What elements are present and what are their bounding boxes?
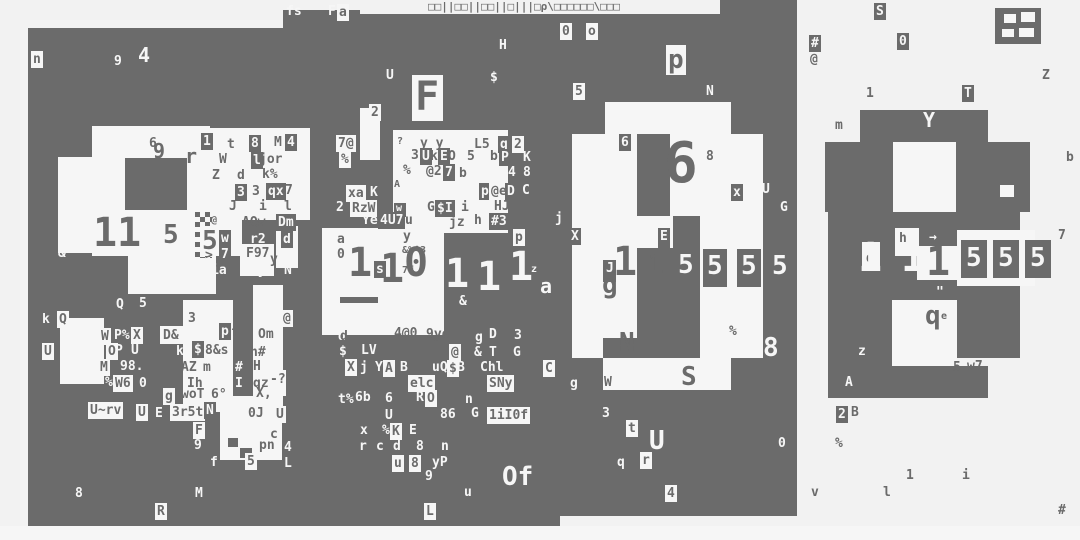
glyph: 4 [665,485,677,502]
glyph: 6 [385,392,393,405]
glyph: t% [338,393,354,406]
panel-block [603,358,731,390]
glyph: j [555,212,563,225]
glyph: 0 [337,248,345,261]
glyph: # [233,359,245,376]
glyph: b [459,167,467,180]
glyph: 6 [664,136,698,192]
glyph: % [382,424,390,437]
glyph: 5 [741,253,757,279]
glyph: U [386,69,394,82]
glyph: D& [163,329,179,342]
glyph: Y [923,110,935,130]
glyph: qx [266,183,286,200]
glyph: I [233,375,245,392]
glyph: fs [286,5,302,18]
glyph: LV [361,344,377,357]
glyph: z [858,345,866,358]
glyph: @ [281,310,293,327]
glyph: e [941,312,947,322]
glyph: U [131,344,139,357]
glyph: C [522,184,530,197]
glyph: f [231,326,239,339]
glyph: @ [810,53,818,66]
glyph: U [274,406,286,423]
panel-block [125,158,187,210]
glyph: A [383,360,395,377]
glyph: 1 [858,238,882,278]
panel-block [605,102,731,134]
glyph: 7f [402,266,414,276]
glyph: ia [211,264,227,277]
glyph: M [274,136,282,149]
glyph: AQw [242,216,265,229]
glyph: l [284,200,292,213]
glyph: 4 [285,134,297,151]
glyph: a [337,233,345,246]
glyph: R [155,503,167,520]
glyph: 8 [763,335,779,361]
glyph: 7@ [336,135,356,152]
glyph: D [489,328,497,341]
glyph: &%^3 [402,246,426,256]
glyph: 5 [707,253,723,279]
glyph: @ [211,216,217,226]
glyph: 86 [440,408,456,421]
glyph: d [340,330,348,343]
glyph: t [626,420,638,437]
glyph: H [499,39,507,52]
glyph: k [430,150,438,163]
panel-block [228,438,238,447]
glyph: q [925,303,941,329]
glyph: 9yo [426,328,449,341]
glyph: u [392,455,404,472]
glyph: x [360,424,368,437]
glyph: v [811,486,819,499]
glyph: 1 [866,87,874,100]
glyph: 6b [355,391,371,404]
glyph: B [457,361,465,374]
glyph: N [706,85,714,98]
glyph: 2 [369,104,381,121]
glyph: 5 [966,245,982,271]
glyph: F [328,5,336,18]
glyph: SNy [487,375,514,392]
glyph: o [586,23,598,40]
glyph: 4@0 [394,327,417,340]
glyph: 0 [897,33,909,50]
glyph: R [416,391,424,404]
glyph: h [474,214,482,227]
glyph: Of [502,464,533,490]
glyph: d [237,169,245,182]
glyph: X, [256,387,272,400]
glyph: g [475,331,483,344]
glyph: N [284,264,292,277]
glyph: 2 [336,201,344,214]
glyph: 5 [163,222,179,248]
glyph: S [874,3,886,20]
glyph: 5 [467,150,475,163]
glyph: X [345,359,357,376]
glyph: 0J [246,405,266,422]
glyph: G [893,301,909,327]
glyph: pn [259,439,275,452]
glyph: W [604,376,612,389]
glyph: w7 [967,360,983,373]
glyph: 5 [772,253,788,279]
glyph: K [390,423,402,440]
glyph: h# [250,346,266,359]
glyph: 8 [706,150,714,163]
glyph: 7 [219,246,231,263]
glyph: " [936,286,944,299]
glyph: & [474,346,482,359]
glyph: N [204,402,216,419]
glyph: % [835,437,843,450]
glyph: 1 [477,257,501,297]
glyph: r [640,452,652,469]
glyph: A [843,374,855,391]
glyph: a [337,4,349,21]
glyph: 1 [93,213,117,253]
glyph: U~rv [88,402,123,419]
glyph: L [424,503,436,520]
glyph: P [115,344,123,357]
glyph: k [42,313,50,326]
panel-block [893,142,956,212]
glyph: 1 [348,243,372,283]
glyph: 9 [114,55,122,68]
glyph: AZ [181,361,197,374]
glyph: 5 [998,245,1014,271]
glyph: Om [258,328,274,341]
glyph: $ [192,341,204,358]
glyph: A [394,180,400,190]
glyph: 1 [509,247,533,287]
glyph: woT [181,388,204,401]
glyph: 5 [139,297,147,310]
glyph: Y [74,345,82,358]
glyph: % [729,325,737,338]
glyph: K [322,312,330,325]
glyph: O [448,150,456,163]
glyph: C [543,360,555,377]
glyph: □□||□□||□□||□|||□ρ\□□□□□□\□□□ [428,1,620,12]
glyph: U [649,428,665,454]
glyph: Y [375,361,383,374]
glyph: d [393,440,401,453]
glyph: G [513,346,521,359]
glyph: 3 [602,407,610,420]
glyph: $ [490,71,498,84]
glyph: s [374,261,386,278]
glyph: B [400,361,408,374]
glyph: % [105,376,113,389]
glyph: W6 [113,375,133,392]
glyph: Ye [362,214,378,227]
glyph: 9 [153,141,165,161]
glyph: u [464,486,472,499]
glyph: r [185,146,197,166]
glyph: r [359,440,367,453]
panel-block [1004,14,1016,23]
glyph: F97 [246,247,269,260]
glyph: 1 [901,238,925,278]
glyph: u [405,214,413,227]
glyph: U [42,343,54,360]
glyph: L [284,457,292,470]
glyph: t [227,138,235,151]
glyph: G [427,201,435,214]
glyph: K [523,151,531,164]
glyph: 1 [201,133,213,150]
glyph: z [531,265,537,275]
glyph: N [619,330,635,356]
glyph: F [415,77,439,117]
glyph: x [731,184,743,201]
glitch-art-canvas: □□||□□||□□||□|||□ρ\□□□□□□\□□□n94fsFa&69r… [0,0,1080,540]
panel-block [720,0,797,16]
glyph: i [461,201,469,214]
glyph: 1 [906,469,914,482]
panel-block [0,526,1080,540]
glyph: y [258,264,266,277]
glyph: n [31,51,43,68]
glyph: F [193,422,205,439]
glyph: 3 [252,185,260,198]
glyph: U [385,409,393,422]
glyph: b [1066,151,1074,164]
panel-block [572,300,603,358]
glyph: m [203,361,211,374]
glyph: 1 [445,254,469,294]
glyph: 98. [120,360,143,373]
panel-block [340,297,378,303]
glyph: % [403,164,411,177]
glyph: yP [432,456,448,469]
glyph: 2 [836,406,848,423]
glyph: i [962,469,970,482]
glyph: $ [339,345,347,358]
glyph: Chl [480,361,503,374]
glyph: 6° [211,388,227,401]
glyph: T [962,85,974,102]
glyph: l [883,486,891,499]
glyph: 0 [139,377,147,390]
glyph: 5 [1030,245,1046,271]
glyph: S [681,364,697,390]
glyph: -? [270,373,286,386]
glyph: k [176,345,184,358]
glyph: E [660,230,668,243]
glyph: E [409,424,417,437]
glyph: f [210,456,218,469]
glyph: y [270,253,278,266]
glyph: 3 [514,329,522,342]
glyph: m [835,119,843,132]
glyph: k% [262,168,278,181]
glyph: n [441,440,449,453]
glyph: K [370,186,378,199]
glyph: @2 [426,165,442,178]
panel-block [1002,29,1014,37]
glyph: Z [212,169,220,182]
glyph: % [339,151,351,168]
glyph: 5 [573,83,585,100]
glyph: 1 [648,252,664,278]
glyph: @ [449,344,461,361]
glyph: 9 [425,470,433,483]
glyph: E [155,407,163,420]
glyph: ? [397,137,403,147]
glyph: n [465,393,473,406]
glyph: Q [116,298,124,311]
glyph: 5 [245,453,257,470]
glyph: Q [57,311,69,328]
glyph: 5 [678,252,694,278]
glyph: P [499,149,511,166]
panel-block [862,300,892,368]
glyph: HJ [494,200,510,213]
glyph: p [219,323,231,340]
panel-block [957,300,1020,358]
glyph: 1iI0f [487,407,530,424]
glyph: U [136,404,148,421]
glyph: 8 [249,135,261,152]
glyph: J [229,200,237,213]
glyph: i [259,200,267,213]
glyph: a [540,276,552,296]
glyph: 4U7 [378,212,405,229]
glyph: 6 [619,134,631,151]
panel-block [956,142,1030,212]
glyph: 8 [75,487,83,500]
glyph: B [851,406,859,419]
glyph: 3r5t [170,404,205,421]
glyph: g [570,377,578,390]
glyph: # [1058,504,1066,517]
glyph: O [425,390,437,407]
glyph: M [98,359,110,376]
glyph: g [163,388,175,405]
glyph: X [569,228,581,245]
glyph: & [58,247,66,260]
panel-block [825,142,893,212]
glyph: 8 [409,455,421,472]
glyph: # [809,35,821,52]
glyph: 7 [1058,229,1066,242]
glyph: U [762,183,770,196]
glyph: uQ [432,361,448,374]
glyph: w [219,230,231,247]
glyph: L5 [474,138,490,151]
glyph: X [131,327,143,344]
glyph: c [376,440,384,453]
glyph: p [666,45,686,75]
glyph: 7 [285,184,293,197]
glyph: 8 [416,440,424,453]
glyph: g [602,272,618,298]
glyph: jz [449,216,465,229]
glyph: G [780,201,788,214]
glyph: P% [114,329,130,342]
panel-block [58,157,92,253]
glyph: 4 [138,45,150,65]
glyph: 4 [284,441,292,454]
glyph: T [487,344,499,361]
glyph: j [360,361,368,374]
glyph: D [505,183,517,200]
glyph: 3 [411,149,419,162]
glyph: #3 [489,213,509,230]
glyph: 7 [443,164,455,181]
glyph: 8 [523,166,531,179]
glyph: > [205,249,213,262]
glyph: 1 [117,213,141,253]
panel-block [128,256,216,294]
glyph: Z [1042,69,1050,82]
glyph: 5 [953,361,961,374]
glyph: 3 [188,312,196,325]
glyph: d [281,231,293,248]
glyph: G [471,407,479,420]
glyph: 8&s [205,344,228,357]
panel-block [1019,28,1034,37]
glyph: W [219,153,227,166]
glyph: 0 [560,23,572,40]
glyph: 1 [926,242,950,282]
glyph: Dm [276,214,296,231]
glyph: & [459,295,467,308]
glyph: jor [259,153,282,166]
glyph: q [617,456,625,469]
glyph: r2 [250,233,266,246]
panel-block [1021,12,1035,22]
glyph: 4 [508,166,516,179]
glyph: b [490,150,498,163]
glyph: 9 [194,439,202,452]
panel-block [1000,185,1014,197]
glyph: M [195,487,203,500]
glyph: H [253,360,261,373]
glyph: 0 [778,437,786,450]
